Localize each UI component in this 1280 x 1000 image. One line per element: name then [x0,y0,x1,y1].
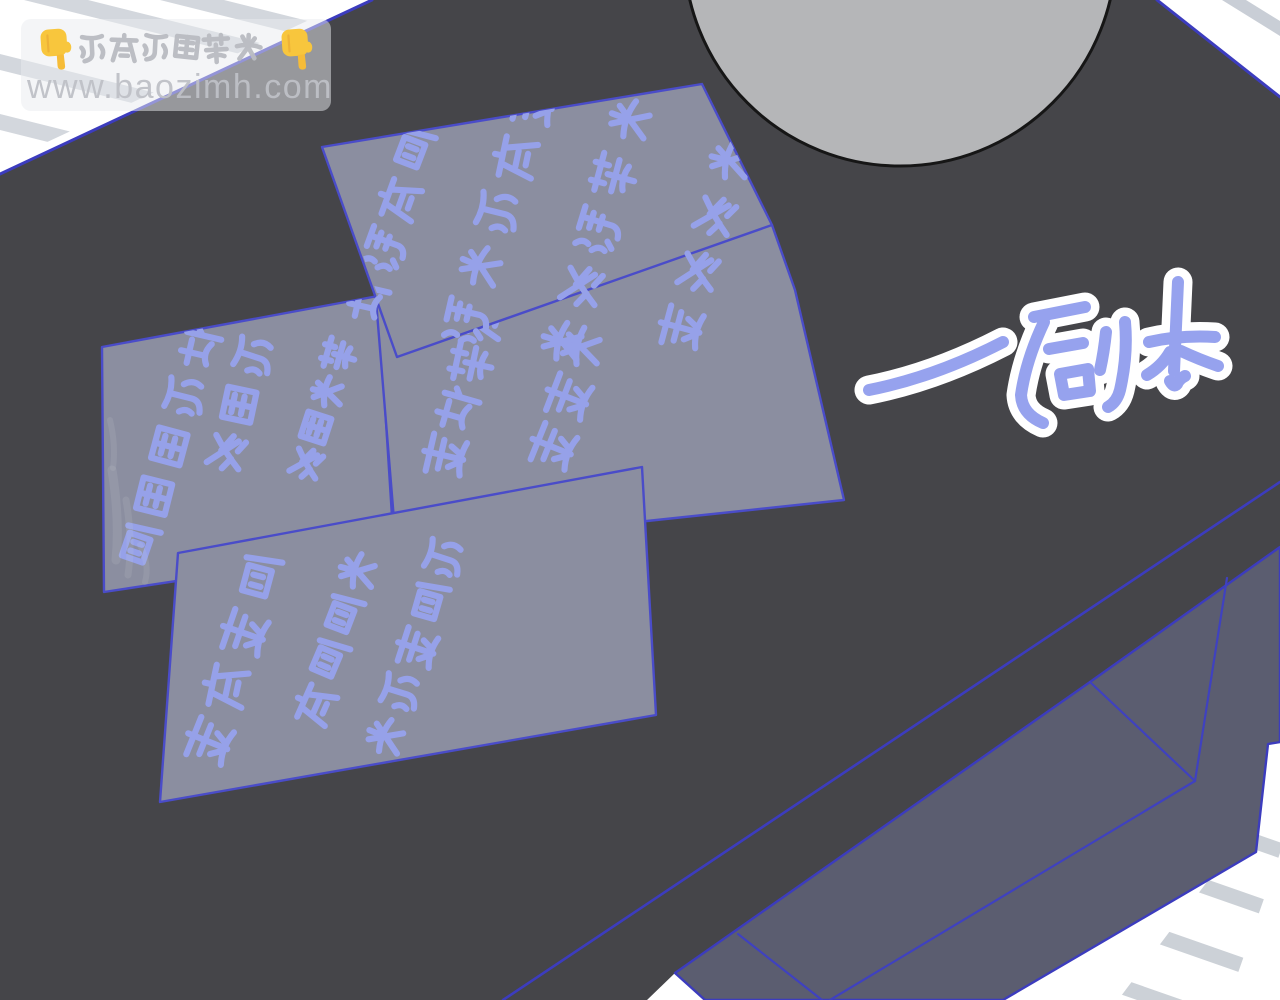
svg-text:www.baozimh.com: www.baozimh.com [26,68,333,106]
